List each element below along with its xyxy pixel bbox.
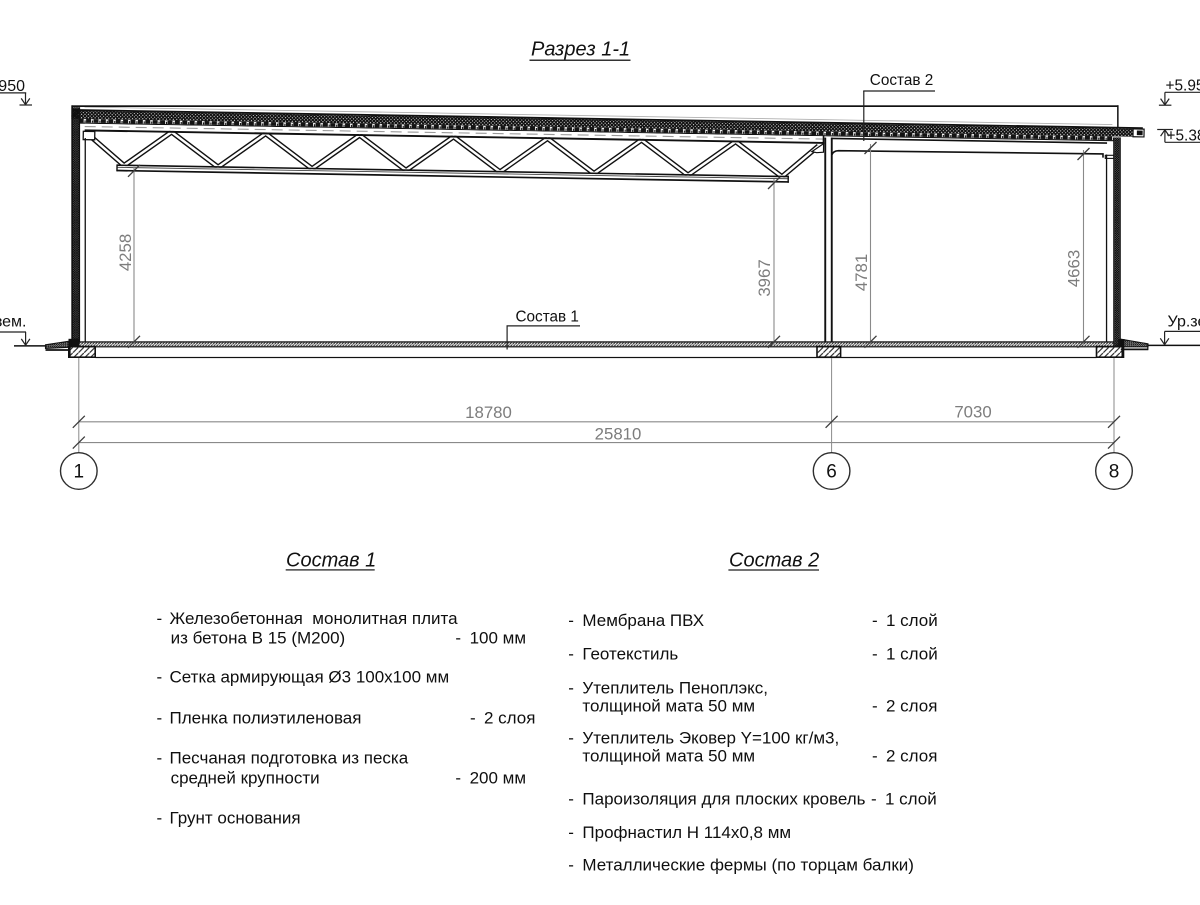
svg-text:-: - xyxy=(872,747,878,766)
svg-text:-: - xyxy=(157,749,163,768)
svg-text:1 слой: 1 слой xyxy=(886,611,938,630)
svg-text:6: 6 xyxy=(826,462,837,483)
svg-text:Пленка полиэтиленовая: Пленка полиэтиленовая xyxy=(170,709,362,728)
svg-text:-: - xyxy=(455,628,461,647)
svg-text:-: - xyxy=(872,611,878,630)
svg-text:5.950: 5.950 xyxy=(0,78,25,95)
svg-text:18780: 18780 xyxy=(465,403,512,422)
svg-text:-: - xyxy=(568,645,574,664)
svg-text:Металлические фермы (по торцам: Металлические фермы (по торцам балки) xyxy=(582,856,914,875)
svg-text:1 слой: 1 слой xyxy=(886,645,938,664)
svg-text:-: - xyxy=(157,709,163,728)
svg-text:8: 8 xyxy=(1109,462,1120,483)
svg-text:Ур.зем.: Ур.зем. xyxy=(1168,313,1200,330)
svg-text:2 слоя: 2 слоя xyxy=(886,696,937,715)
svg-text:Ур.зем.: Ур.зем. xyxy=(0,313,27,330)
svg-text:-: - xyxy=(568,611,574,630)
svg-text:Сетка армирующая Ø3 100х100 мм: Сетка армирующая Ø3 100х100 мм xyxy=(170,668,450,687)
svg-text:из бетона В 15 (М200): из бетона В 15 (М200) xyxy=(171,628,346,647)
svg-text:-: - xyxy=(157,809,163,828)
svg-text:200 мм: 200 мм xyxy=(470,769,526,788)
svg-text:Песчаная подготовка из песка: Песчаная подготовка из песка xyxy=(170,749,409,768)
svg-text:-: - xyxy=(568,678,574,697)
svg-text:100 мм: 100 мм xyxy=(470,628,526,647)
svg-text:-: - xyxy=(157,609,163,628)
svg-text:-: - xyxy=(871,790,877,809)
svg-text:1 слой: 1 слой xyxy=(885,790,937,809)
svg-text:-: - xyxy=(455,769,461,788)
svg-text:-: - xyxy=(872,696,878,715)
svg-text:-: - xyxy=(470,709,476,728)
svg-text:-: - xyxy=(157,668,163,687)
svg-text:2 слоя: 2 слоя xyxy=(484,709,535,728)
svg-text:-: - xyxy=(872,645,878,664)
svg-text:4258: 4258 xyxy=(116,234,135,271)
svg-text:-: - xyxy=(568,823,574,842)
svg-text:25810: 25810 xyxy=(595,424,642,443)
svg-text:Железобетонная монолитная пли: Железобетонная монолитная плита xyxy=(170,609,459,628)
svg-text:Геотекстиль: Геотекстиль xyxy=(582,645,678,664)
svg-text:Состав 1: Состав 1 xyxy=(516,309,579,326)
svg-text:7030: 7030 xyxy=(954,403,991,422)
svg-text:Состав 2: Состав 2 xyxy=(729,550,819,572)
svg-text:Состав 2: Состав 2 xyxy=(870,72,933,89)
svg-text:4663: 4663 xyxy=(1064,250,1083,287)
svg-text:Пароизоляция для плоских крове: Пароизоляция для плоских кровель xyxy=(582,790,865,809)
svg-text:Грунт основания: Грунт основания xyxy=(170,809,301,828)
svg-text:Профнастил Н 114х0,8 мм: Профнастил Н 114х0,8 мм xyxy=(582,823,791,842)
svg-text:Состав 1: Состав 1 xyxy=(286,550,376,572)
svg-text:Мембрана ПВХ: Мембрана ПВХ xyxy=(582,611,704,630)
svg-text:4781: 4781 xyxy=(852,254,871,291)
svg-text:-: - xyxy=(568,856,574,875)
svg-text:толщиной мата 50 мм: толщиной мата 50 мм xyxy=(582,747,755,766)
svg-text:-: - xyxy=(568,729,574,748)
svg-text:толщиной мата 50 мм: толщиной мата 50 мм xyxy=(582,696,755,715)
svg-text:Разрез 1-1: Разрез 1-1 xyxy=(531,39,630,61)
svg-text:средней крупности: средней крупности xyxy=(171,769,320,788)
svg-text:Утеплитель Пеноплэкс,: Утеплитель Пеноплэкс, xyxy=(582,678,768,697)
svg-text:-: - xyxy=(568,790,574,809)
svg-text:2 слоя: 2 слоя xyxy=(886,747,937,766)
svg-text:3967: 3967 xyxy=(755,259,774,296)
svg-text:Утеплитель Эковер Y=100 кг/м3,: Утеплитель Эковер Y=100 кг/м3, xyxy=(582,729,839,748)
svg-text:1: 1 xyxy=(74,462,85,483)
